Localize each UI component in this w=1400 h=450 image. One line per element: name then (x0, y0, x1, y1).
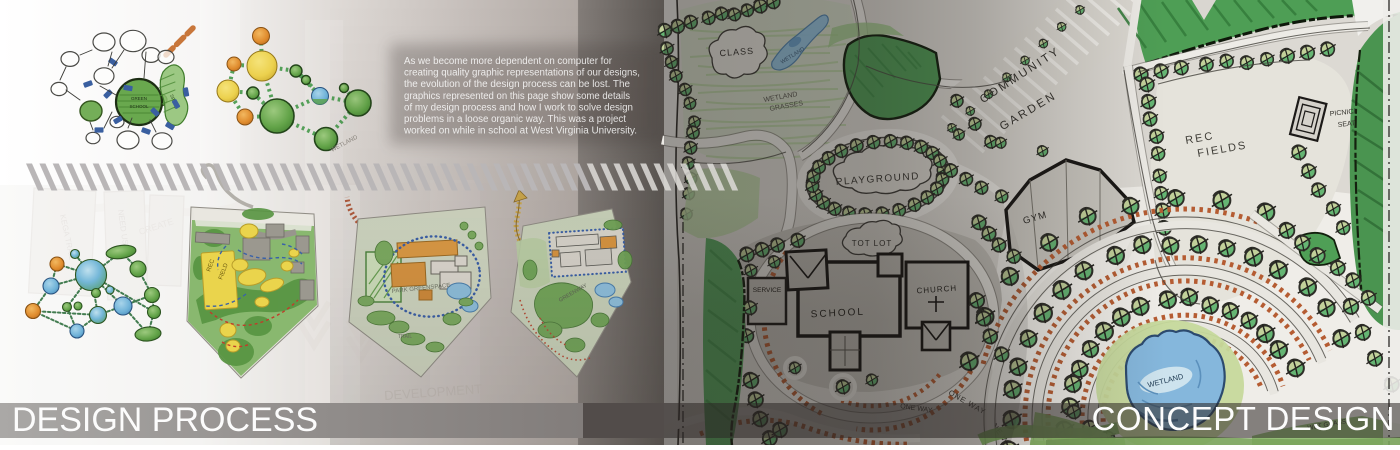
svg-text:SCHOOL: SCHOOL (129, 104, 149, 109)
svg-text:problems in a loose organic wa: problems in a loose organic way. This wa… (404, 114, 626, 125)
svg-text:creating quality graphic repre: creating quality graphic representations… (404, 68, 640, 79)
svg-text:the evolution of the design pr: the evolution of the design process can … (404, 79, 630, 90)
svg-text:As we become more dependent on: As we become more dependent on computer … (404, 56, 613, 67)
svg-text:of my design process and how I: of my design process and how I work to s… (404, 102, 633, 113)
svg-text:GREEN: GREEN (131, 96, 147, 101)
svg-text:DESIGN PROCESS: DESIGN PROCESS (12, 401, 318, 439)
svg-text:graphics represented on this p: graphics represented on this page show s… (404, 91, 630, 102)
svg-text:CONCEPT DESIGN: CONCEPT DESIGN (1092, 400, 1395, 437)
svg-text:worked on while in school at W: worked on while in school at West Virgin… (403, 126, 637, 137)
